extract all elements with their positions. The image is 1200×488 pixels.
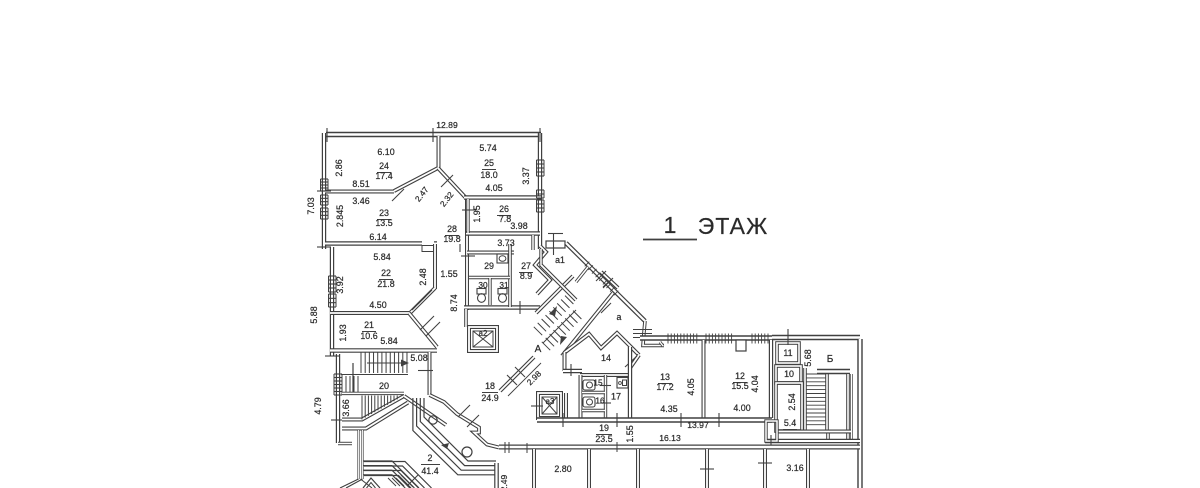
svg-text:ЭТАЖ: ЭТАЖ bbox=[698, 213, 768, 239]
svg-text:7.8: 7.8 bbox=[499, 214, 511, 224]
svg-text:23.5: 23.5 bbox=[595, 434, 612, 444]
svg-text:21.8: 21.8 bbox=[377, 279, 394, 289]
svg-text:3.16: 3.16 bbox=[786, 463, 803, 473]
svg-text:25: 25 bbox=[484, 158, 494, 168]
svg-text:1.93: 1.93 bbox=[338, 324, 348, 341]
svg-text:29: 29 bbox=[484, 261, 494, 271]
svg-text:5.88: 5.88 bbox=[309, 306, 319, 323]
svg-text:5.4: 5.4 bbox=[784, 418, 796, 428]
svg-text:2.86: 2.86 bbox=[334, 159, 344, 176]
svg-text:3.46: 3.46 bbox=[352, 196, 369, 206]
svg-text:а3: а3 bbox=[546, 397, 555, 406]
svg-text:31: 31 bbox=[499, 280, 509, 290]
svg-text:12: 12 bbox=[735, 371, 745, 381]
svg-text:23: 23 bbox=[379, 208, 389, 218]
svg-text:19.8: 19.8 bbox=[443, 234, 460, 244]
svg-text:3.92: 3.92 bbox=[335, 276, 345, 293]
svg-text:3.98: 3.98 bbox=[510, 221, 527, 231]
svg-text:11: 11 bbox=[783, 348, 792, 358]
svg-text:1.55: 1.55 bbox=[625, 425, 635, 442]
svg-text:5.84: 5.84 bbox=[373, 252, 390, 262]
svg-text:2.49: 2.49 bbox=[499, 474, 509, 488]
svg-text:19: 19 bbox=[599, 423, 609, 433]
svg-text:6.10: 6.10 bbox=[377, 147, 394, 157]
svg-text:16: 16 bbox=[595, 396, 605, 406]
svg-text:26: 26 bbox=[499, 204, 509, 214]
svg-text:7.03: 7.03 bbox=[306, 197, 316, 214]
svg-text:8.51: 8.51 bbox=[352, 179, 369, 189]
svg-text:18: 18 bbox=[485, 381, 495, 391]
svg-text:4.50: 4.50 bbox=[369, 300, 386, 310]
svg-text:2: 2 bbox=[428, 453, 433, 463]
svg-text:а2: а2 bbox=[479, 329, 488, 338]
svg-text:5.08: 5.08 bbox=[410, 353, 427, 363]
svg-text:5.68: 5.68 bbox=[803, 349, 813, 366]
svg-text:6.14: 6.14 bbox=[369, 232, 386, 242]
svg-text:17.2: 17.2 bbox=[656, 382, 673, 392]
svg-text:5.84: 5.84 bbox=[380, 336, 397, 346]
svg-text:27: 27 bbox=[521, 261, 531, 271]
svg-text:24: 24 bbox=[379, 161, 389, 171]
svg-text:17.4: 17.4 bbox=[375, 171, 392, 181]
svg-text:15: 15 bbox=[593, 378, 603, 388]
svg-text:а: а bbox=[617, 312, 622, 322]
svg-text:21: 21 bbox=[364, 320, 374, 330]
svg-text:24.9: 24.9 bbox=[481, 393, 498, 403]
svg-text:10.6: 10.6 bbox=[360, 331, 377, 341]
svg-text:8.74: 8.74 bbox=[449, 294, 459, 311]
svg-text:13.97: 13.97 bbox=[687, 420, 709, 430]
svg-text:4.00: 4.00 bbox=[733, 403, 750, 413]
svg-text:А: А bbox=[535, 344, 542, 355]
svg-text:Б: Б bbox=[827, 354, 834, 365]
svg-text:4.05: 4.05 bbox=[686, 378, 696, 395]
svg-text:4.79: 4.79 bbox=[313, 397, 323, 414]
svg-text:18.0: 18.0 bbox=[480, 170, 497, 180]
svg-text:3.73: 3.73 bbox=[497, 238, 514, 248]
svg-text:а1: а1 bbox=[555, 255, 565, 265]
svg-text:30: 30 bbox=[478, 280, 488, 290]
svg-text:20: 20 bbox=[379, 381, 389, 391]
svg-text:2.54: 2.54 bbox=[787, 393, 797, 410]
svg-text:2.48: 2.48 bbox=[418, 268, 428, 285]
svg-text:3.37: 3.37 bbox=[521, 167, 531, 184]
svg-text:16.13: 16.13 bbox=[659, 433, 681, 443]
svg-text:41.4: 41.4 bbox=[421, 466, 438, 476]
svg-text:1.95: 1.95 bbox=[472, 205, 482, 222]
svg-text:3.66: 3.66 bbox=[341, 399, 351, 416]
svg-text:13.5: 13.5 bbox=[375, 218, 392, 228]
svg-text:22: 22 bbox=[381, 268, 391, 278]
svg-text:2.80: 2.80 bbox=[554, 464, 571, 474]
svg-text:4.04: 4.04 bbox=[750, 375, 760, 392]
svg-text:15.5: 15.5 bbox=[731, 381, 748, 391]
svg-text:28: 28 bbox=[447, 224, 457, 234]
svg-text:8.9: 8.9 bbox=[520, 271, 532, 281]
svg-text:2.845: 2.845 bbox=[335, 205, 345, 227]
svg-text:13: 13 bbox=[660, 372, 670, 382]
svg-text:1: 1 bbox=[664, 212, 677, 238]
svg-text:5.74: 5.74 bbox=[479, 143, 496, 153]
svg-text:14: 14 bbox=[601, 353, 611, 363]
svg-text:12.89: 12.89 bbox=[436, 120, 458, 130]
svg-text:4.05: 4.05 bbox=[485, 183, 502, 193]
svg-text:17: 17 bbox=[611, 392, 621, 402]
svg-text:10: 10 bbox=[784, 369, 794, 379]
svg-text:1.55: 1.55 bbox=[440, 269, 457, 279]
svg-text:4.35: 4.35 bbox=[660, 404, 677, 414]
